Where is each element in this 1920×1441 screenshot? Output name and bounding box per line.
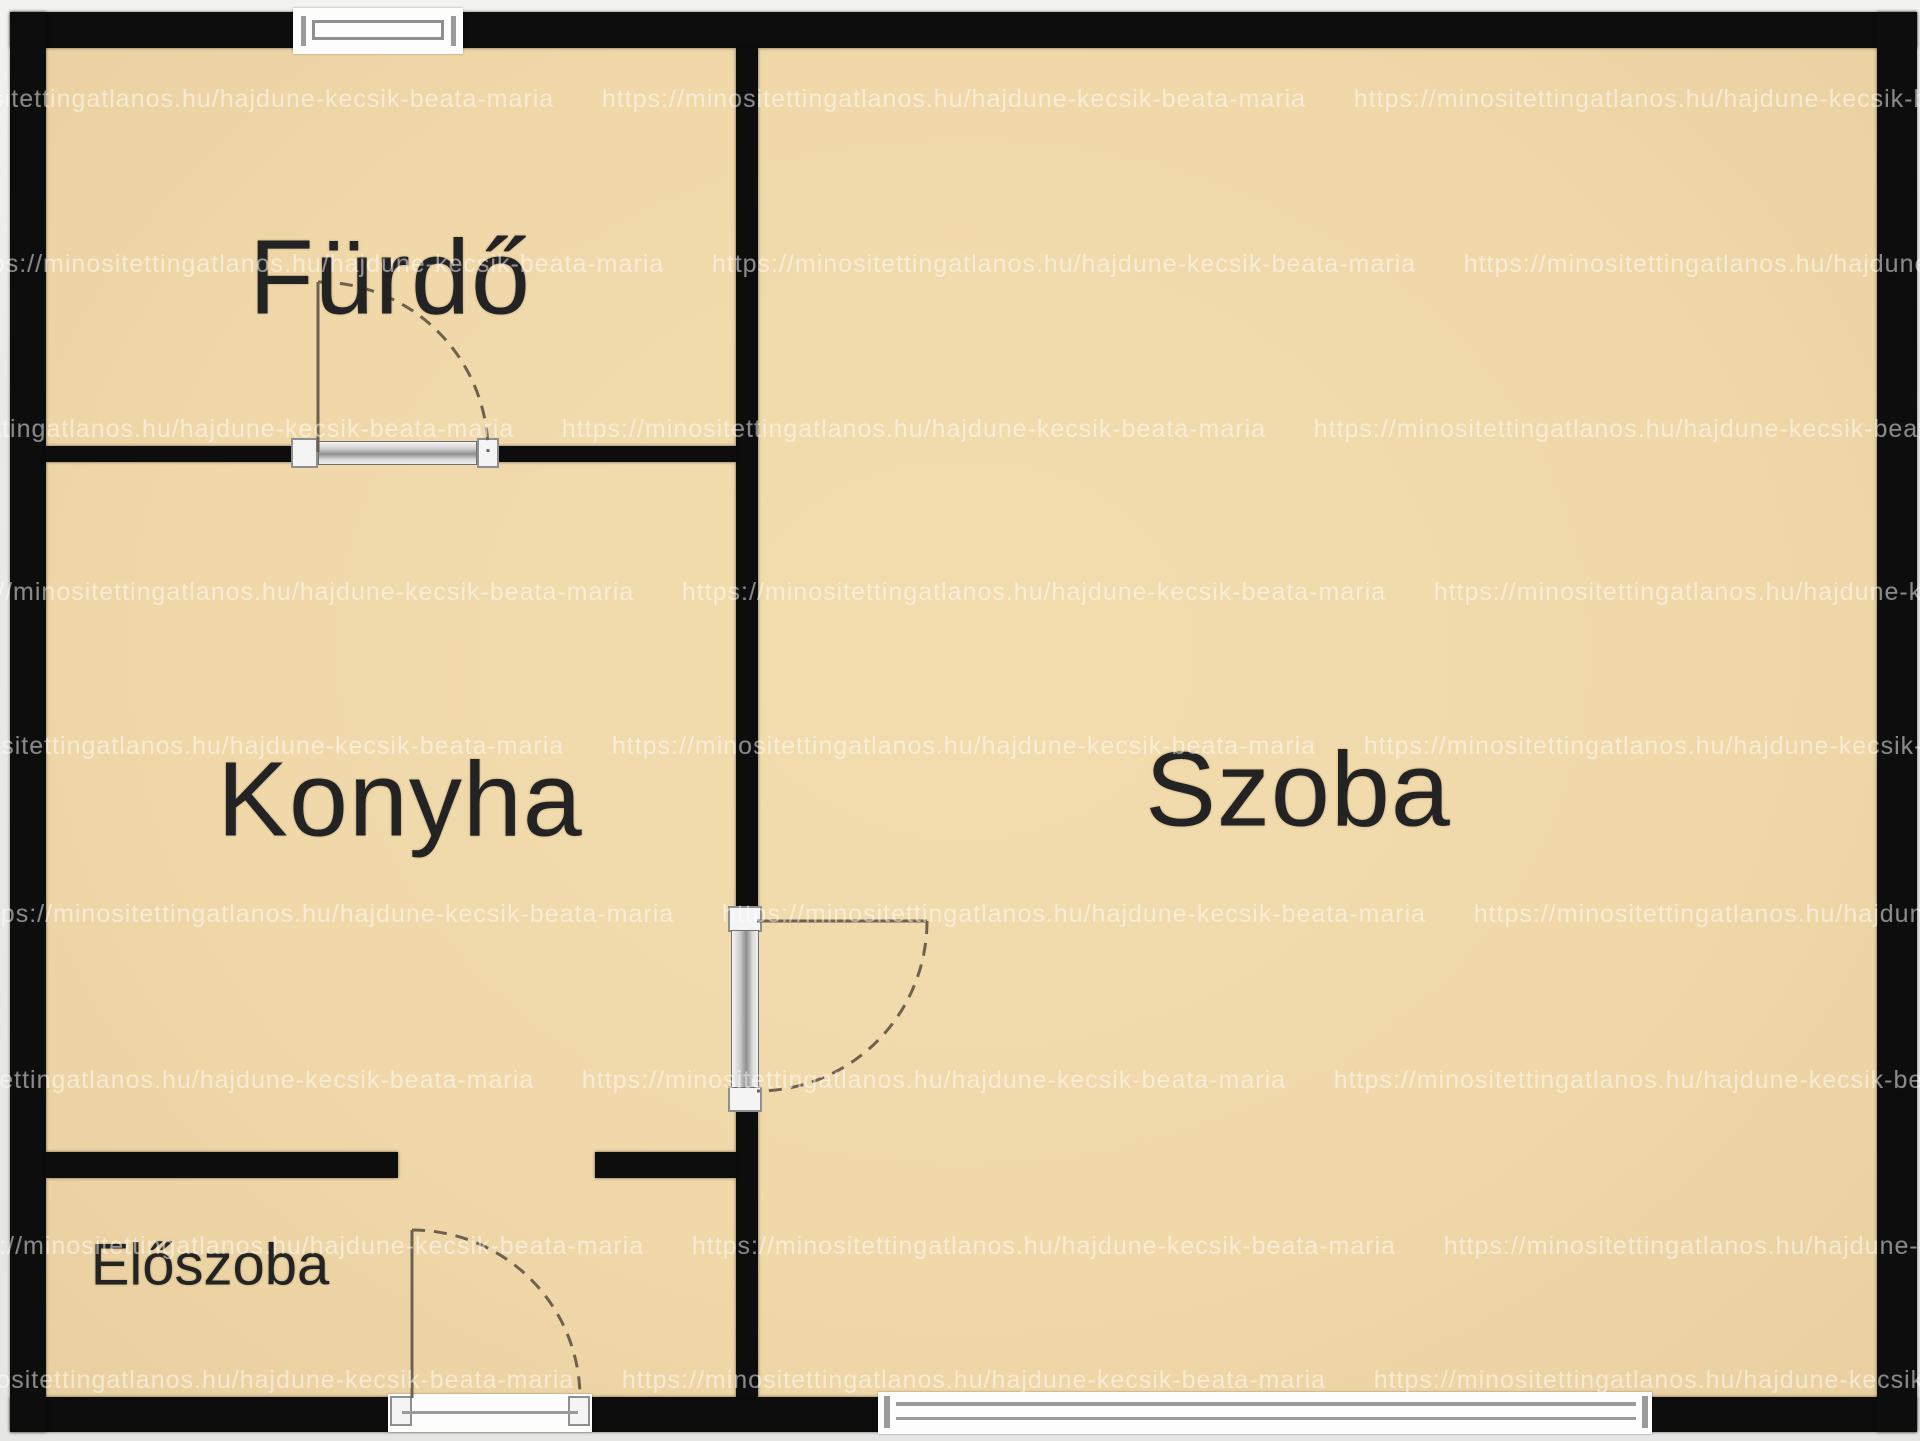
entry-door-arc	[412, 1230, 580, 1398]
door-swing-icon	[0, 0, 1920, 1441]
room-label-kitchen: Konyha	[217, 740, 583, 861]
room-label-hall: Előszoba	[91, 1232, 330, 1299]
room-label-living-room: Szoba	[1145, 730, 1451, 851]
living-room-door-arc	[757, 921, 927, 1091]
room-label-bathroom: Fürdő	[249, 218, 531, 339]
floor-plan: Fürdő Konyha Szoba Előszoba https://mino…	[0, 0, 1920, 1441]
